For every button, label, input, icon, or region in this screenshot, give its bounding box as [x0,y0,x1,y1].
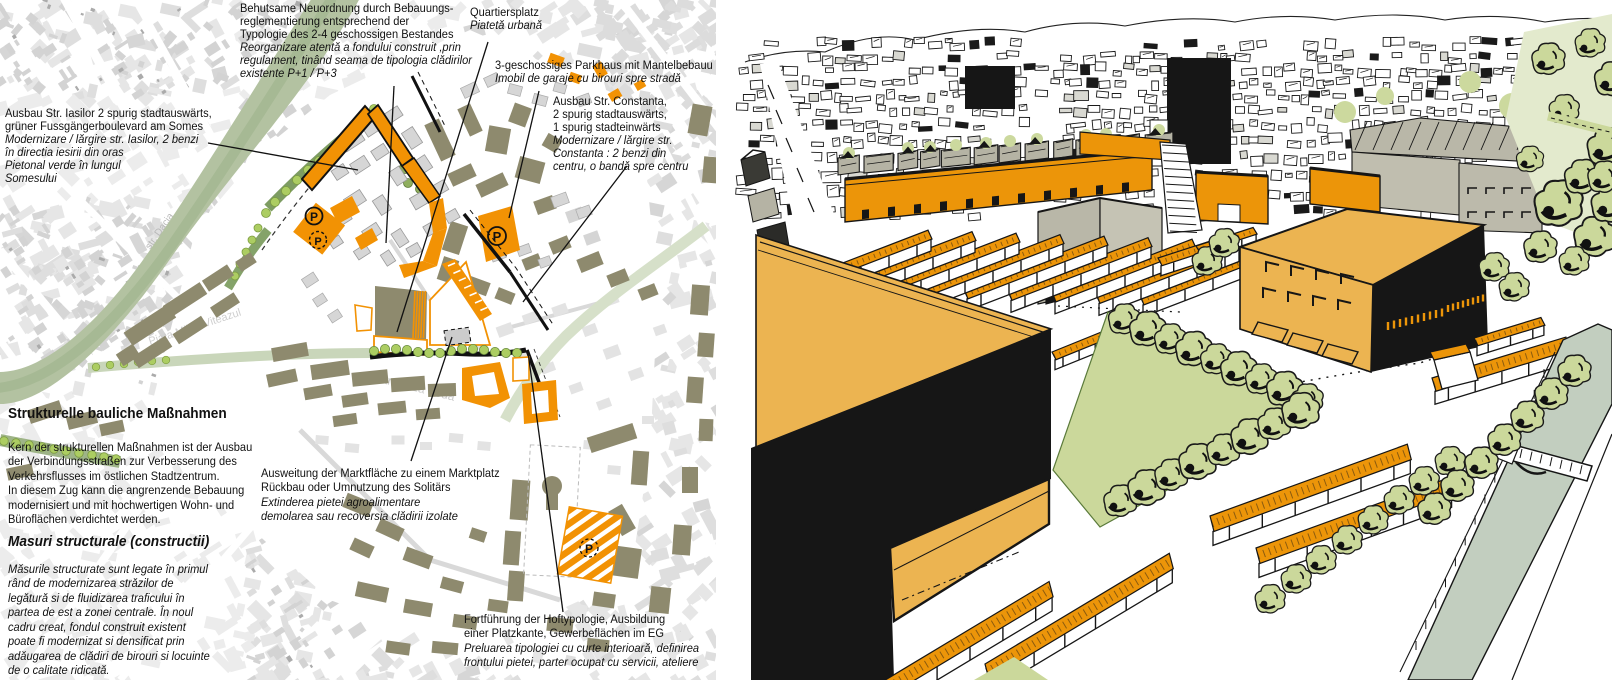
svg-text:P: P [314,236,321,248]
svg-text:P: P [310,210,318,224]
svg-text:P: P [493,229,502,244]
svg-text:P: P [585,542,593,556]
